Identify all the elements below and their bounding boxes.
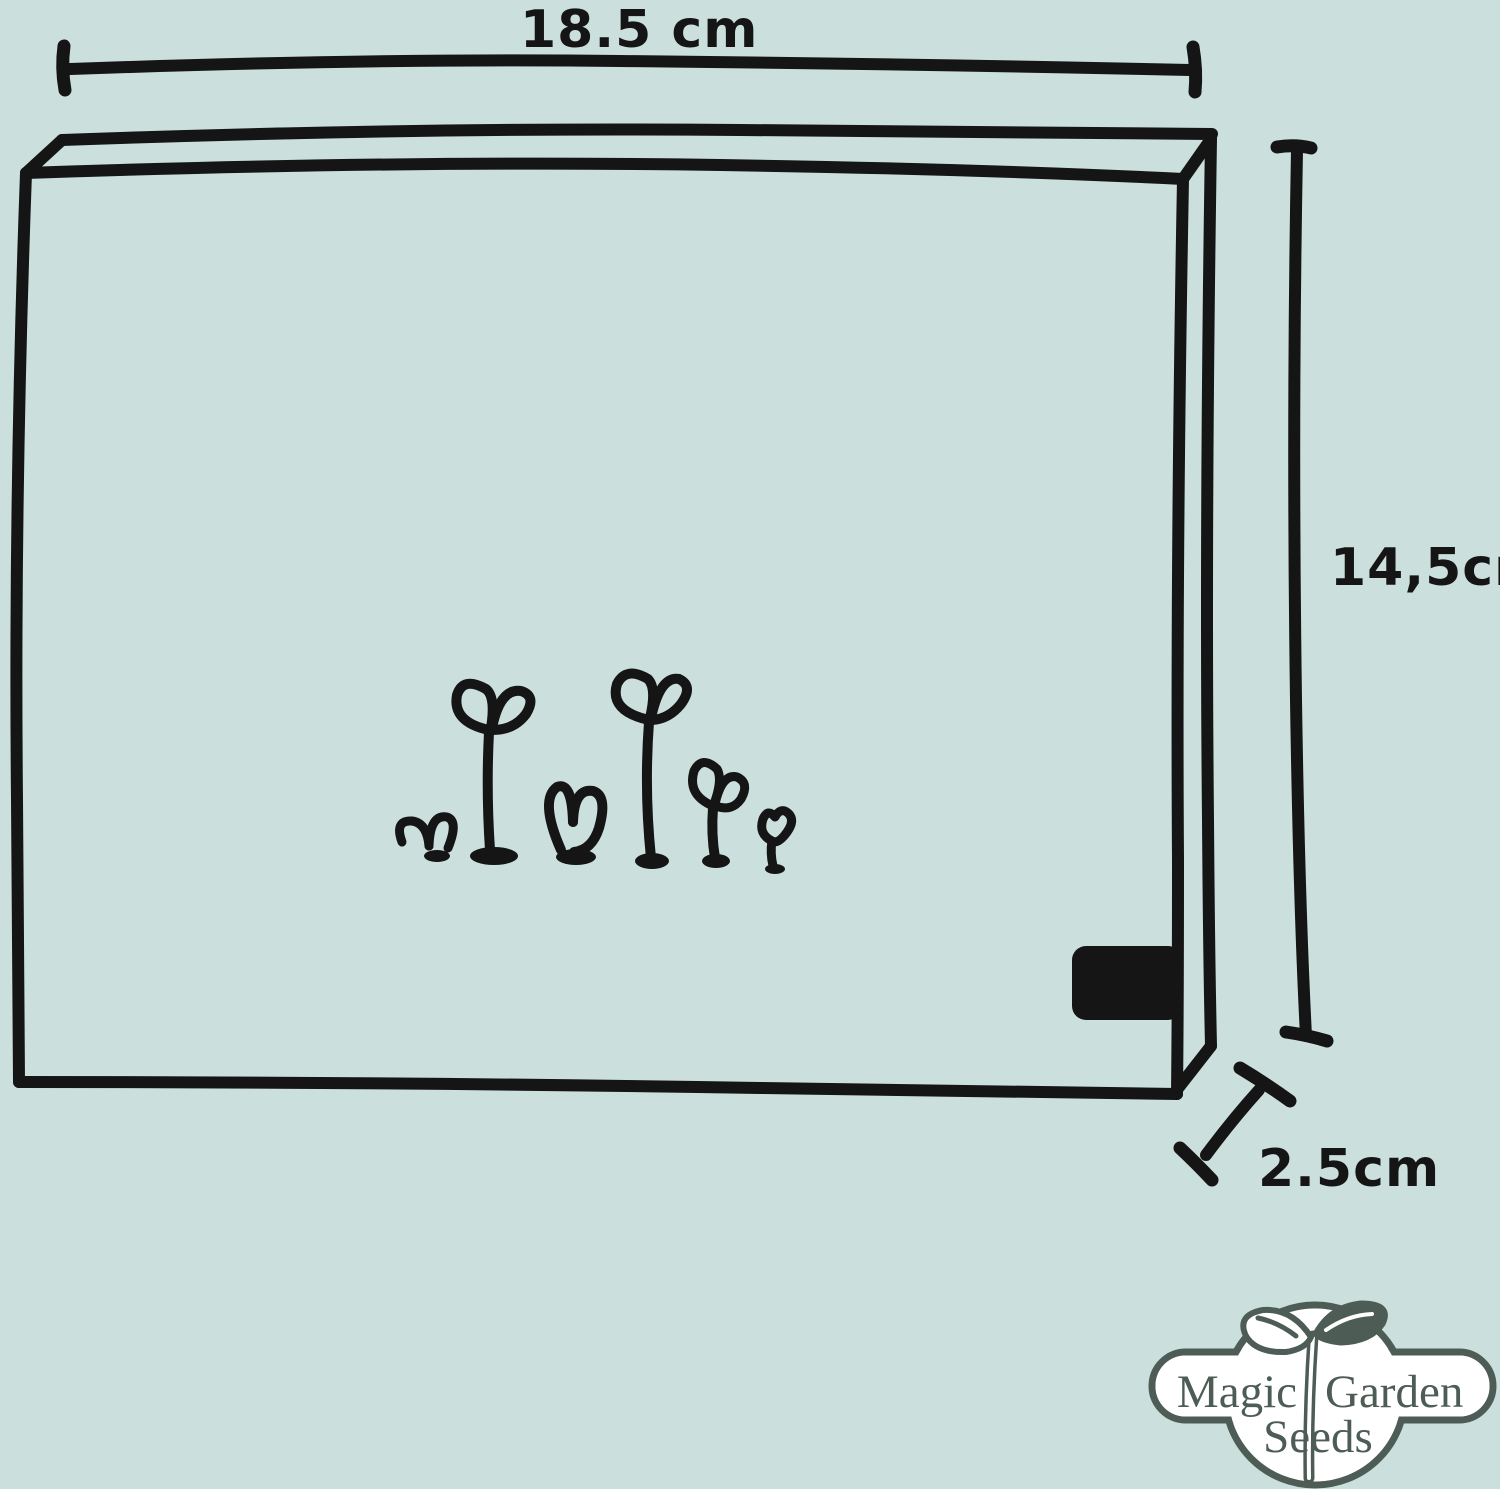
depth-dimension-label: 2.5cm [1258, 1139, 1440, 1199]
height-dimension-bottom-tick [1286, 1032, 1327, 1041]
height-dimension: 14,5cm [1277, 146, 1500, 1041]
seed-box-dimension-diagram: 18.5 cm [0, 0, 1500, 1489]
sprout-icon [400, 817, 454, 862]
box-front-top-edge [26, 164, 1183, 179]
box-bottom-right-bevel [1179, 1046, 1211, 1087]
box-left-edge [16, 173, 26, 1082]
latch-mark [1072, 946, 1182, 1020]
sprout-icon [693, 762, 745, 868]
height-dimension-label: 14,5cm [1330, 538, 1500, 598]
width-dimension-right-tick [1193, 47, 1196, 92]
sprout-icon [456, 684, 530, 865]
logo-word-seeds: Seeds [1263, 1411, 1373, 1463]
sprout-icon [762, 811, 792, 874]
depth-dimension: 2.5cm [1180, 1068, 1440, 1199]
box-back-right-edge [1207, 139, 1211, 1046]
sprout-doodles [400, 674, 792, 874]
depth-dimension-line [1206, 1090, 1259, 1155]
seed-box-outline [16, 129, 1212, 1094]
box-bottom-edge [19, 1082, 1177, 1094]
width-dimension: 18.5 cm [63, 0, 1196, 92]
box-back-top-edge [62, 129, 1212, 140]
sprout-icon [616, 674, 687, 869]
sprout-icon [549, 786, 602, 865]
width-dimension-line [70, 60, 1190, 70]
width-dimension-label: 18.5 cm [520, 0, 758, 60]
height-dimension-line [1294, 150, 1306, 1036]
diagram-drawing: 18.5 cm [0, 0, 1500, 1489]
magic-garden-seeds-logo: Magic Garden Seeds [1152, 1303, 1493, 1485]
